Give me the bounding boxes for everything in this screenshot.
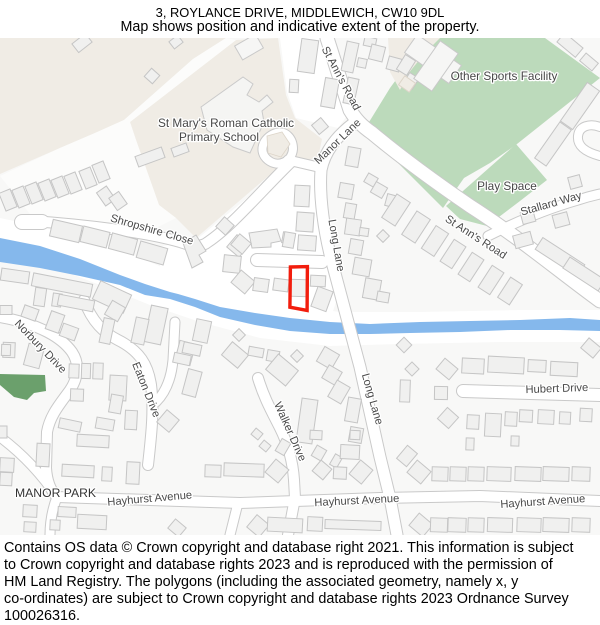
svg-text:MANOR PARK: MANOR PARK [15,486,96,500]
svg-text:Hubert Drive: Hubert Drive [525,382,588,396]
svg-text:Other Sports Facility: Other Sports Facility [451,69,558,83]
svg-text:Play Space: Play Space [477,179,537,193]
svg-text:St Mary's Roman Catholic: St Mary's Roman Catholic [158,116,294,130]
svg-text:Primary School: Primary School [179,130,259,144]
